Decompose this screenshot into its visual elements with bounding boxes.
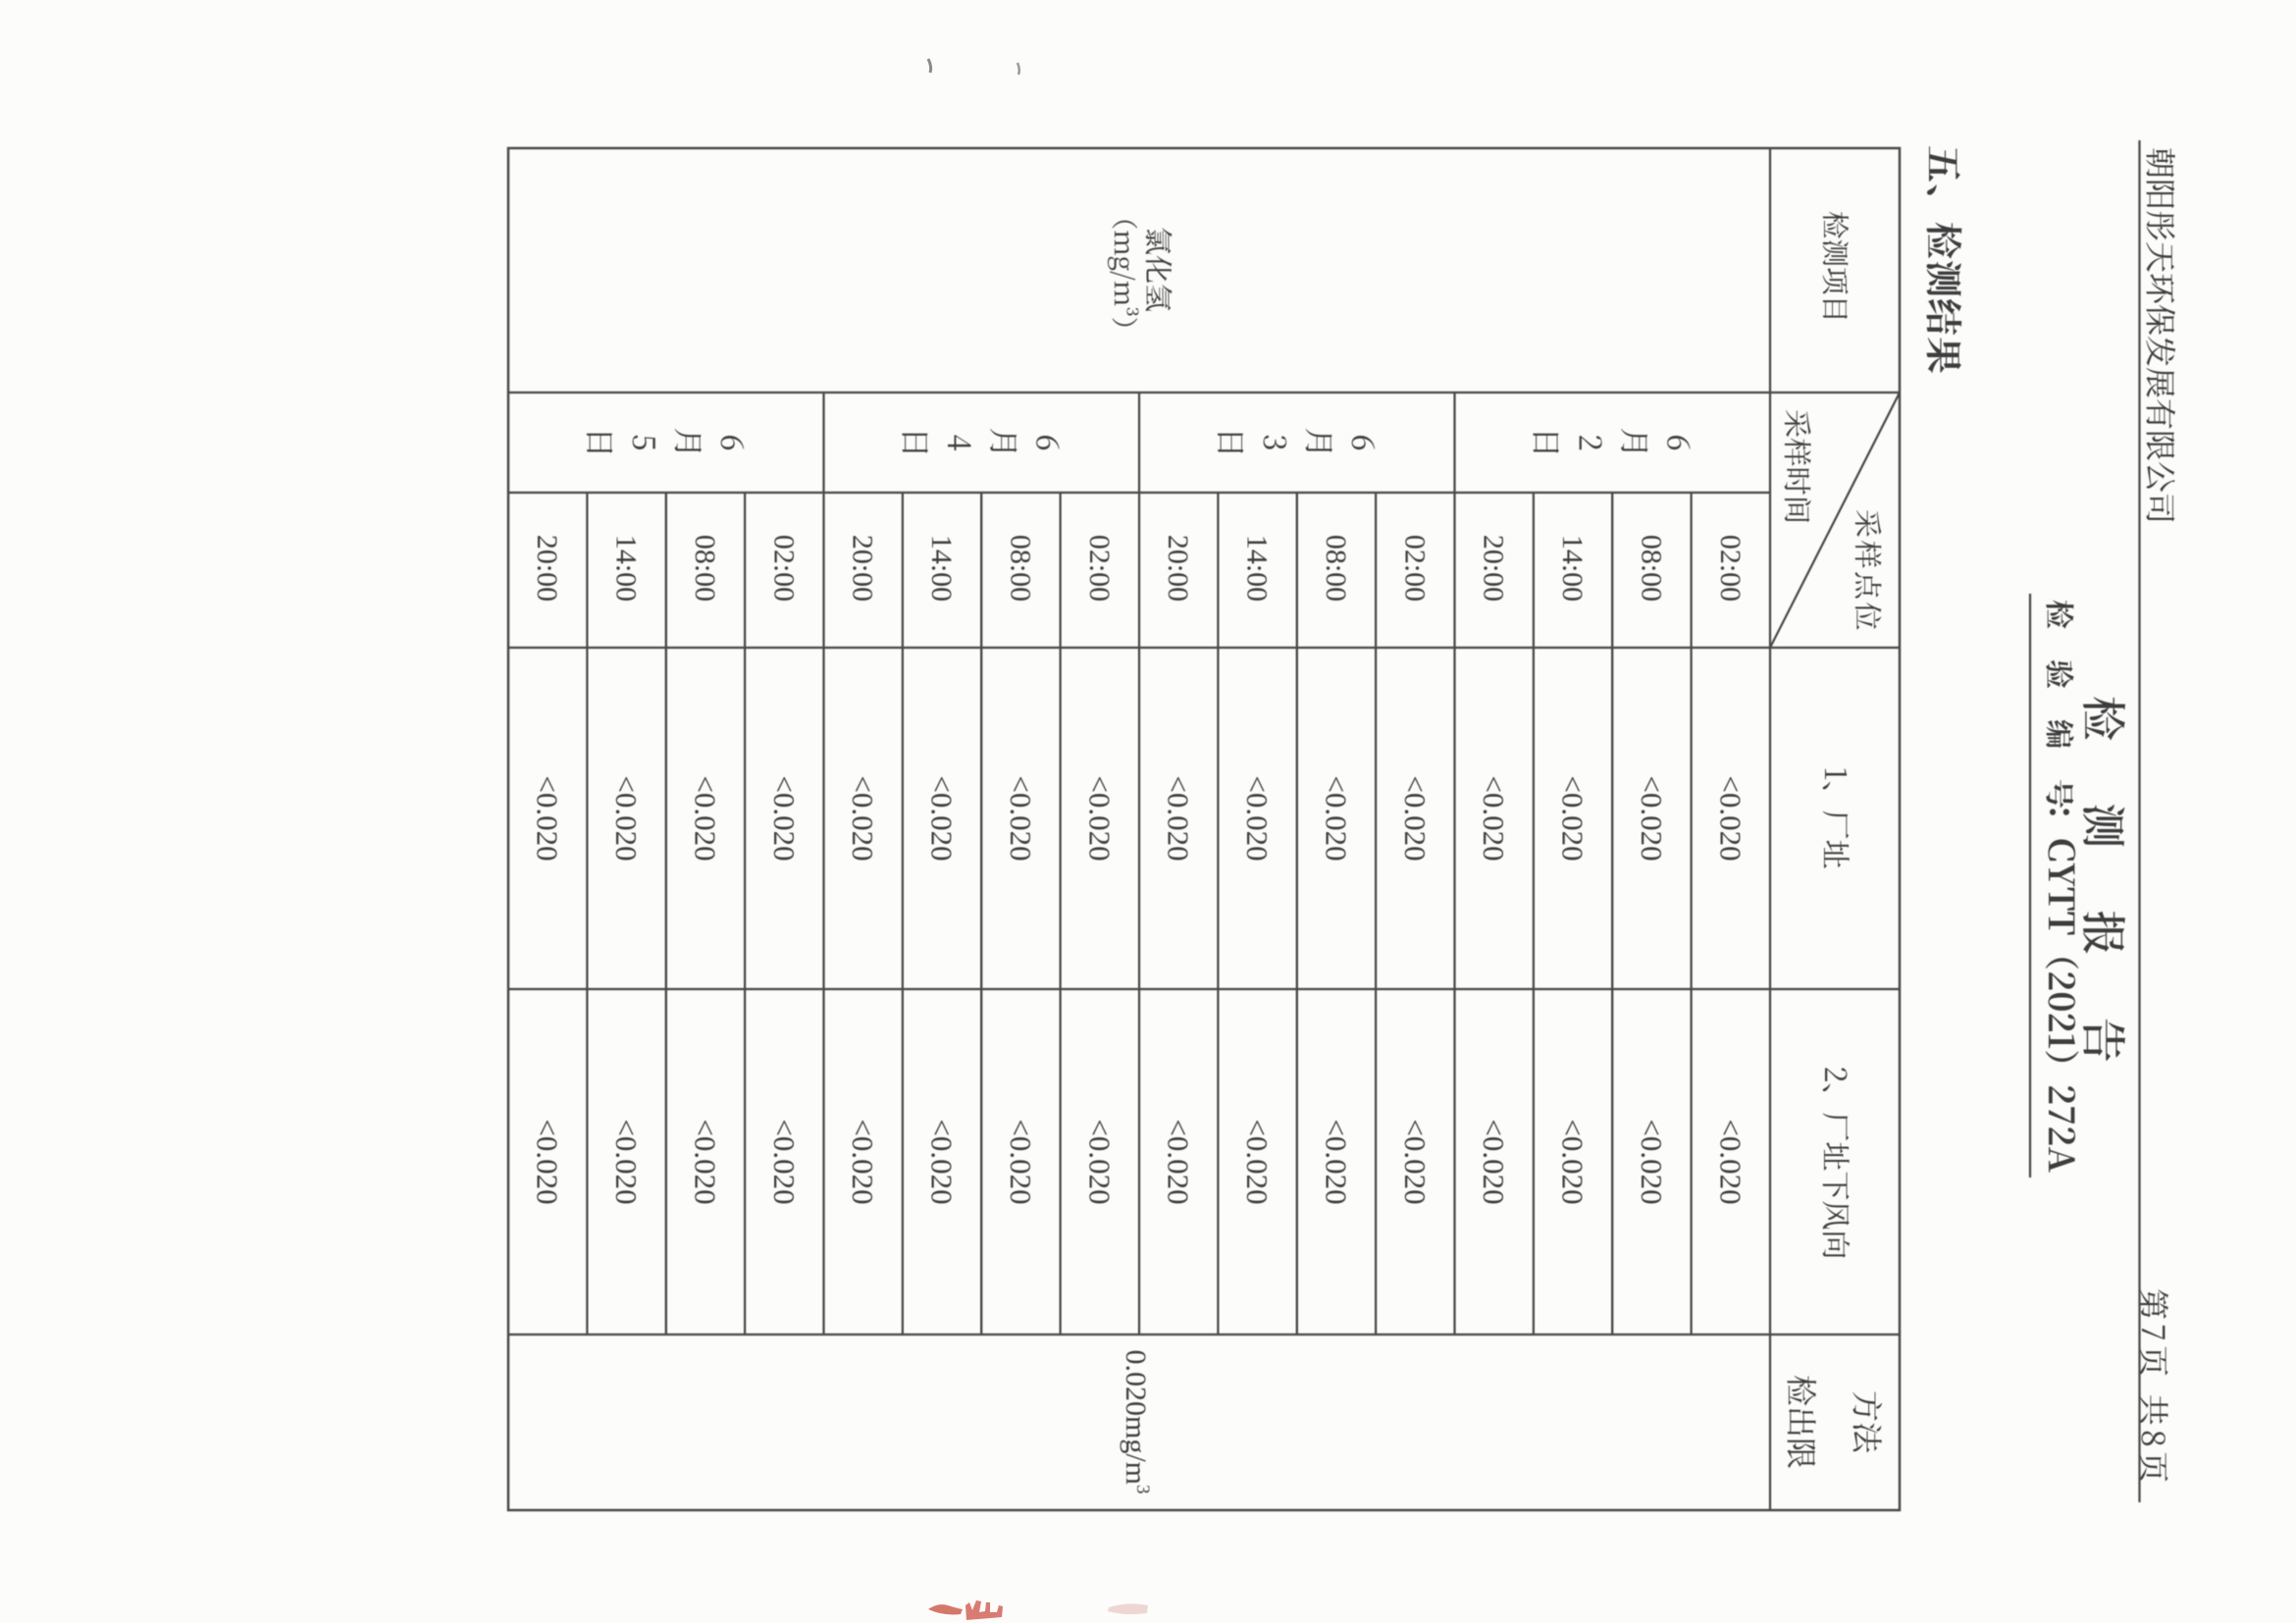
svg-text:20:00: 20:00 [1162, 535, 1194, 602]
svg-text:<0.020: <0.020 [1240, 775, 1275, 861]
svg-text:20:00: 20:00 [1478, 535, 1510, 602]
svg-text:08:00: 08:00 [1320, 535, 1352, 602]
svg-text:<0.020: <0.020 [1082, 1119, 1117, 1204]
svg-text:<0.020: <0.020 [1162, 1119, 1196, 1204]
svg-text:<0.020: <0.020 [609, 775, 644, 861]
svg-text:<0.020: <0.020 [609, 1119, 644, 1204]
svg-text:<0.020: <0.020 [1004, 775, 1038, 861]
svg-text:<0.020: <0.020 [846, 775, 880, 861]
svg-text:14:00: 14:00 [925, 535, 958, 602]
svg-text:<0.020: <0.020 [767, 1119, 802, 1204]
svg-text:<0.020: <0.020 [1398, 775, 1433, 861]
svg-text:<0.020: <0.020 [1319, 1119, 1353, 1204]
svg-text:<0.020: <0.020 [688, 1119, 722, 1204]
svg-text:<0.020: <0.020 [1240, 1119, 1275, 1204]
svg-text:<0.020: <0.020 [925, 1119, 960, 1204]
svg-text:08:00: 08:00 [1635, 535, 1667, 602]
svg-text:<0.020: <0.020 [688, 775, 722, 861]
svg-text:<0.020: <0.020 [531, 1119, 565, 1204]
svg-text:0.020mg/m3: 0.020mg/m3 [1120, 1349, 1153, 1493]
svg-text:02:00: 02:00 [767, 535, 800, 602]
svg-text:<0.020: <0.020 [767, 775, 802, 861]
svg-text:<0.020: <0.020 [1004, 1119, 1038, 1204]
svg-text:<0.020: <0.020 [1398, 1119, 1433, 1204]
svg-text:<0.020: <0.020 [1556, 1119, 1591, 1204]
svg-text:<0.020: <0.020 [1713, 1119, 1748, 1204]
svg-text:14:00: 14:00 [1241, 535, 1274, 602]
svg-text:<0.020: <0.020 [1477, 1119, 1511, 1204]
svg-text:<0.020: <0.020 [1713, 775, 1748, 861]
svg-text:<0.020: <0.020 [1162, 775, 1196, 861]
svg-text:20:00: 20:00 [531, 535, 563, 602]
svg-text:<0.020: <0.020 [1319, 775, 1353, 861]
svg-text:<0.020: <0.020 [1477, 775, 1511, 861]
svg-text:<0.020: <0.020 [531, 775, 565, 861]
svg-text:02:00: 02:00 [1714, 535, 1747, 602]
svg-text:08:00: 08:00 [689, 535, 721, 602]
svg-text:02:00: 02:00 [1398, 535, 1431, 602]
svg-text:<0.020: <0.020 [846, 1119, 880, 1204]
svg-text:14:00: 14:00 [610, 535, 643, 602]
svg-text:<0.020: <0.020 [1556, 775, 1591, 861]
svg-text:08:00: 08:00 [1004, 535, 1036, 602]
svg-text:<0.020: <0.020 [925, 775, 960, 861]
svg-text:14:00: 14:00 [1556, 535, 1589, 602]
svg-text:20:00: 20:00 [847, 535, 879, 602]
svg-text:<0.020: <0.020 [1635, 775, 1669, 861]
svg-text:02:00: 02:00 [1083, 535, 1116, 602]
svg-text:<0.020: <0.020 [1635, 1119, 1669, 1204]
svg-text:<0.020: <0.020 [1082, 775, 1117, 861]
